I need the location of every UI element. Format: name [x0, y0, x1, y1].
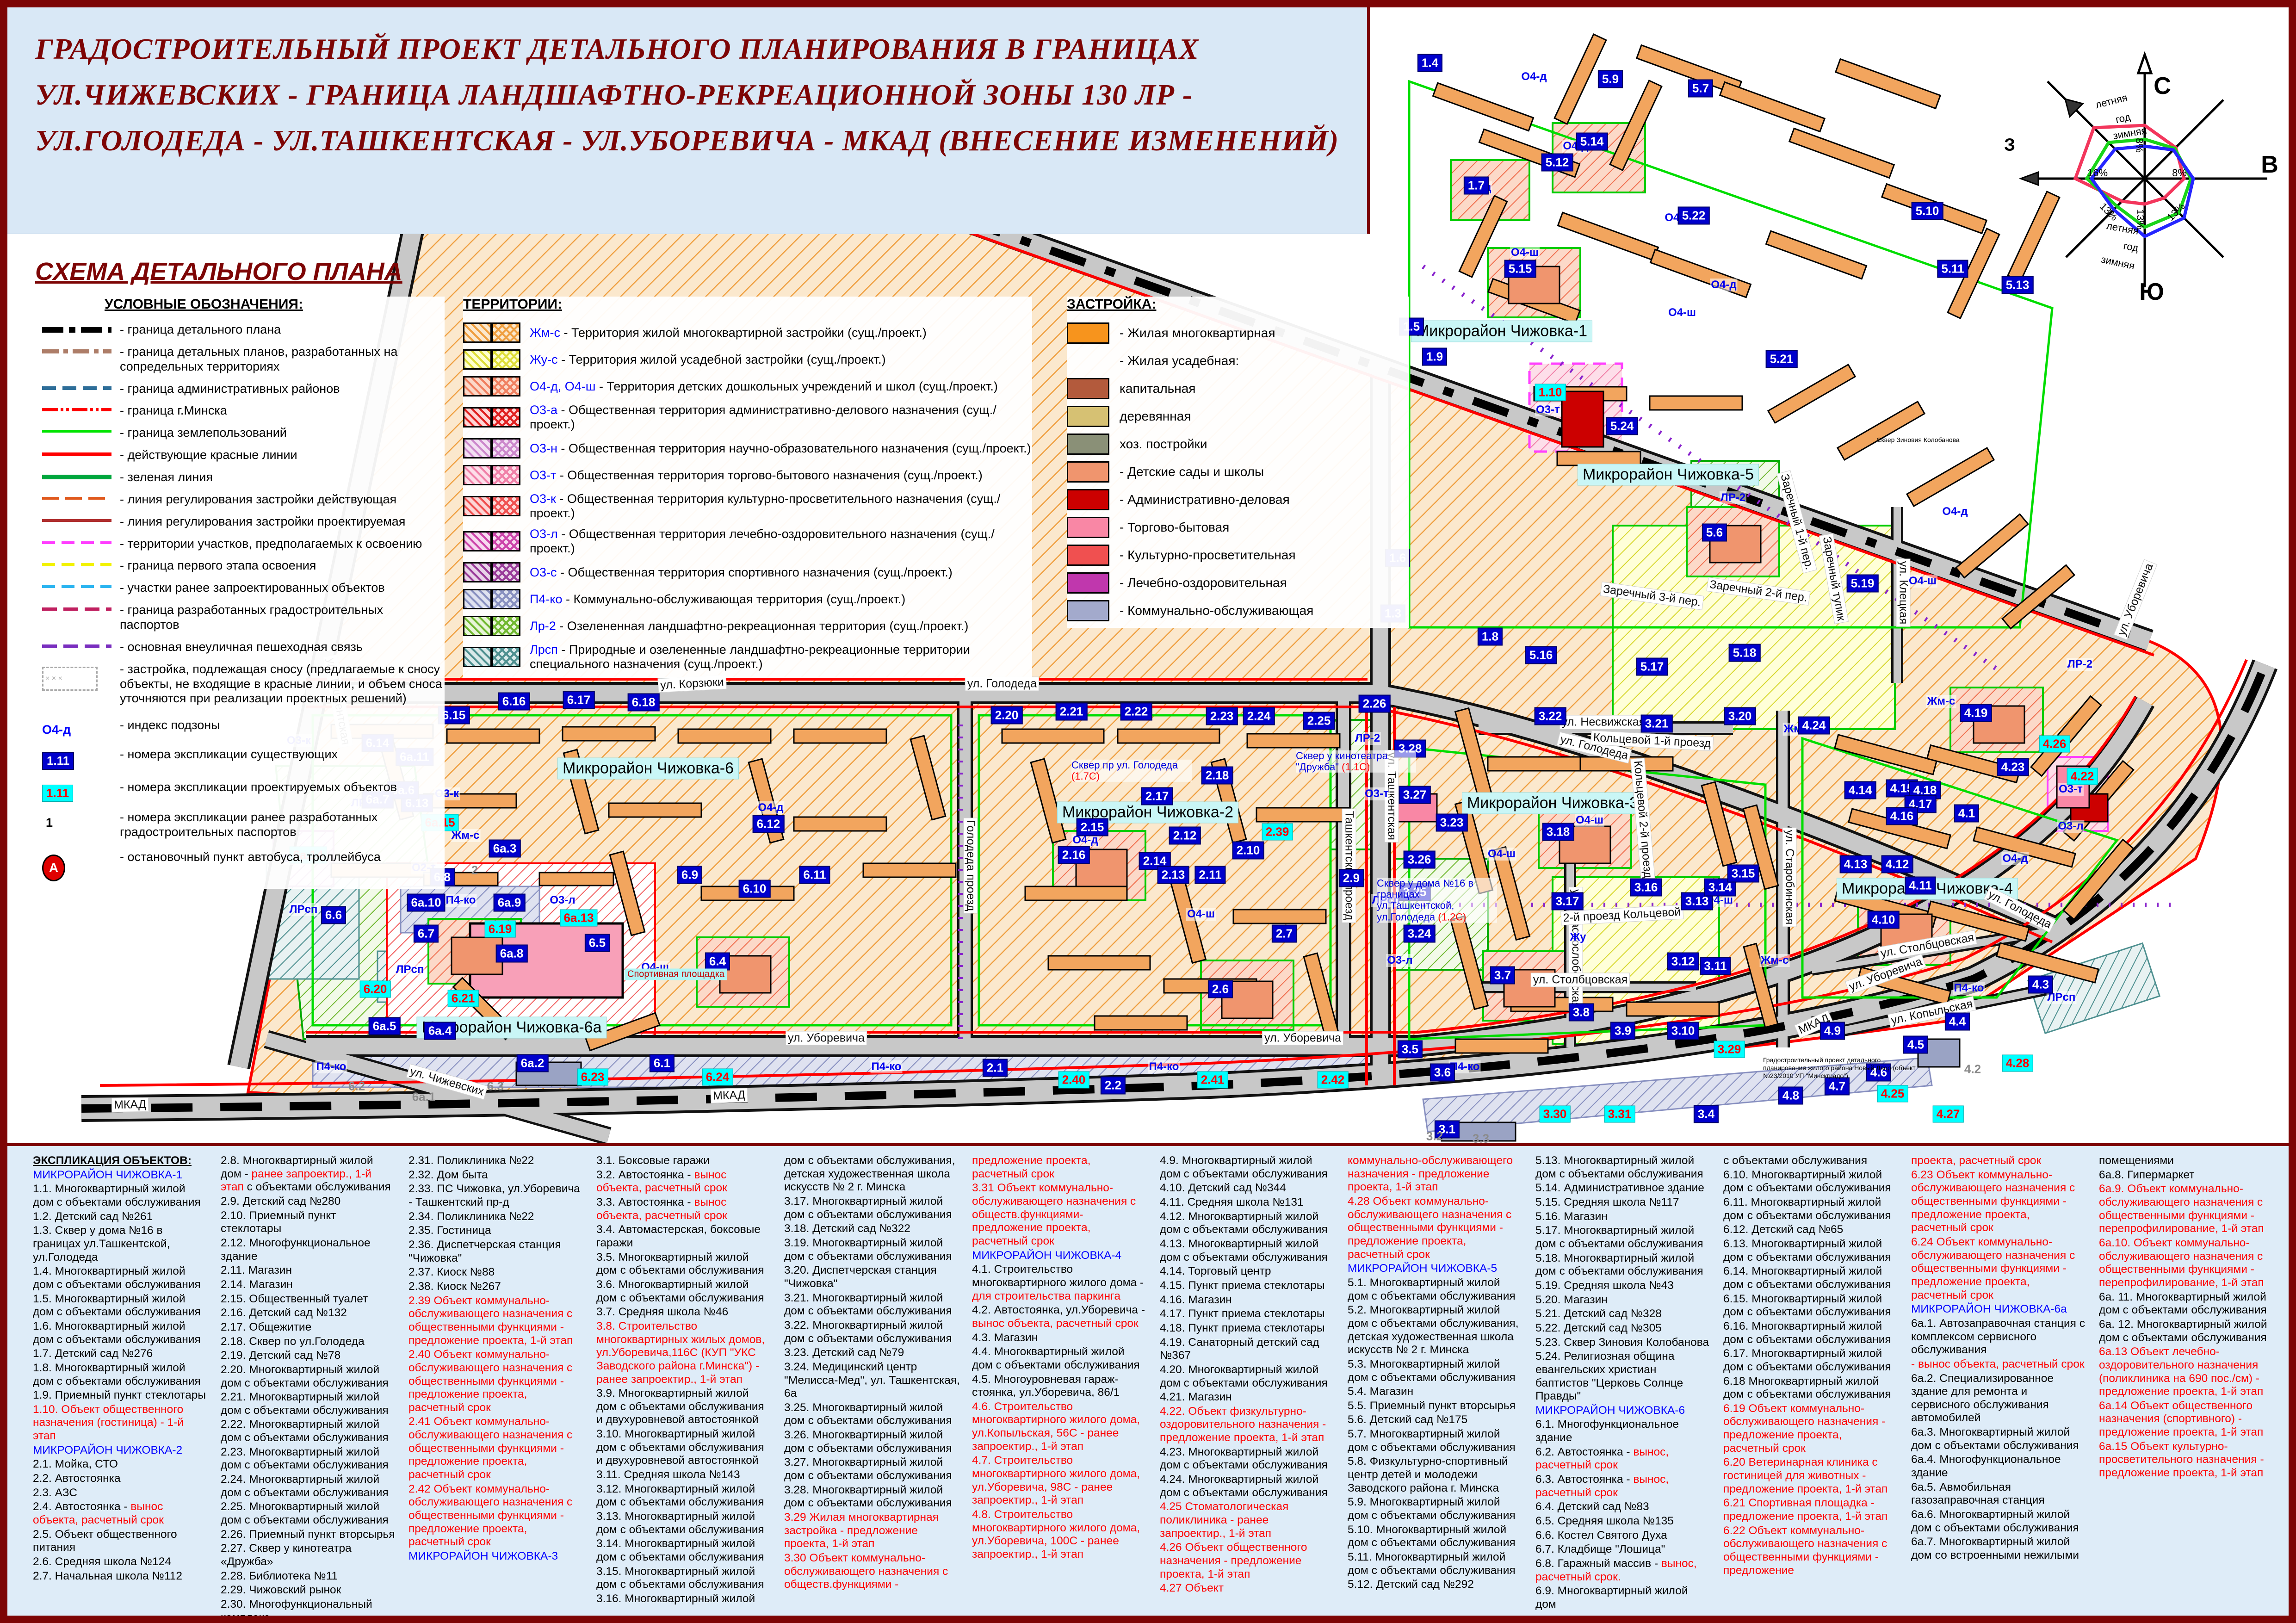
explication-text-run: 2.36. Диспетчерская станция "Чижовка": [408, 1239, 561, 1264]
territory-code: О3-а: [530, 403, 557, 417]
explication-text-run: 2.6. Средняя школа №124: [33, 1555, 171, 1568]
explication-entry: 3.5. Многоквартирный жилой дом с объекта…: [596, 1251, 772, 1277]
explication-entry: 2.38. Киоск №267: [408, 1280, 584, 1294]
legend-line-sample: [42, 497, 111, 500]
explication-column: 2.8. Многоквартирный жилой дом - ранее з…: [221, 1154, 396, 1611]
explication-entry: 4.7. Строительство многоквартирного жило…: [972, 1454, 1148, 1507]
legend-territory-label: О3-т - Общественная территория торгово-б…: [530, 468, 983, 483]
explication-entry: 2.20. Многоквартирный жилой дом с объект…: [221, 1363, 396, 1390]
explication-entry: 4.6. Строительство многоквартирного жило…: [972, 1400, 1148, 1454]
wind-rose-label: В: [2261, 151, 2278, 179]
explication-entry: 5.24. Религиозная община евангельских хр…: [1535, 1350, 1711, 1403]
explication-text-run: 5.18. Многоквартирный жилой дом с объект…: [1535, 1252, 1703, 1278]
explication-text-run: 3.13. Многоквартирный жилой дом с объект…: [596, 1510, 764, 1536]
explication-entry: коммунально-обслуживающего назначения - …: [1348, 1154, 1523, 1194]
explication-entry: 3.23. Детский сад №79: [784, 1346, 960, 1360]
explication-entry: 5.1. Многоквартирный жилой дом с объекта…: [1348, 1276, 1523, 1303]
explication-entry: 2.41 Объект коммунально-обслуживающего н…: [408, 1415, 584, 1481]
explication-entry: 4.18. Пункт приема стеклотары: [1160, 1322, 1336, 1335]
explication-entry: МИКРОРАЙОН ЧИЖОВКА-5: [1348, 1262, 1523, 1276]
explication-column: 2.31. Поликлиника №222.32. Дом быта2.33.…: [408, 1154, 584, 1611]
explication-text-run: 6.24 Объект коммунально-обслуживающего н…: [1911, 1236, 2075, 1301]
legend-zastroyka-label: - Лечебно-оздоровительная: [1120, 576, 1287, 590]
explication-entry: 6а.8. Гипермаркет: [2099, 1169, 2275, 1182]
building-footprint: [1455, 1039, 1548, 1053]
legend-territory-item: О3-с - Общественная территория спортивно…: [463, 562, 1032, 582]
explication-text-run: 5.23. Сквер Зиновия Колобанова: [1535, 1336, 1709, 1349]
explication-text-run: 6.10. Многоквартирный жилой дом с объект…: [1723, 1169, 1891, 1195]
legend-territory-item: О3-а - Общественная территория администр…: [463, 403, 1032, 432]
explication-text-run: 1.1. Многоквартирный жилой дом с объекта…: [33, 1183, 201, 1208]
legend-line-sample: [42, 585, 111, 588]
zastroyka-swatch: [1067, 406, 1109, 427]
explication-entry: 6.8. Гаражный массив - вынос, расчетный …: [1535, 1557, 1711, 1584]
explication-entry: 2.6. Средняя школа №124: [33, 1555, 209, 1569]
building-footprint: [1256, 808, 1349, 822]
explication-entry: 5.15. Средняя школа №117: [1535, 1196, 1711, 1209]
explication-text-run: 4.23. Многоквартирный жилой дом с объект…: [1160, 1446, 1328, 1472]
explication-entry: 2.37. Киоск №88: [408, 1266, 584, 1279]
zastroyka-swatch: [1067, 378, 1109, 399]
building-footprint: [1956, 514, 2028, 577]
explication-text-run: 2.38. Киоск №267: [408, 1280, 501, 1293]
explication-text-run: 3.2. Автостоянка -: [596, 1169, 694, 1181]
explication-entry: 6а.3. Многоквартирный жилой дом с объект…: [1911, 1426, 2087, 1452]
building-footprint: [609, 803, 701, 817]
explication-entry: 3.22. Многоквартирный жилой дом с объект…: [784, 1319, 960, 1345]
legend-line-sample: [42, 519, 111, 522]
explication-entry: 2.36. Диспетчерская станция "Чижовка": [408, 1239, 584, 1265]
legend-zastroyka-item: хоз. постройки: [1067, 434, 1409, 455]
explication-text-run: 6а.6. Многоквартирный жилой дом с объект…: [1911, 1508, 2079, 1534]
explication-entry: 6.5. Средняя школа №135: [1535, 1515, 1711, 1528]
explication-entry: 3.20. Диспетчерская станция "Чижовка": [784, 1264, 960, 1290]
explication-entry: 6а. 12. Многоквартирный жилой дом с объе…: [2099, 1318, 2275, 1344]
building-footprint: [1076, 849, 1127, 886]
explication-entry: 5.20. Магазин: [1535, 1294, 1711, 1307]
explication-text-run: 4.28 Объект коммунально-обслуживающего н…: [1348, 1195, 1511, 1261]
explication-entry: дом с объектами обслуживания, детская ху…: [784, 1154, 960, 1194]
building-footprint: [563, 727, 655, 741]
explication-entry: 4.20. Многоквартирный жилой дом с объект…: [1160, 1363, 1336, 1390]
explication-entry: 6.10. Многоквартирный жилой дом с объект…: [1723, 1169, 1899, 1195]
explication-text-run: 4.18. Пункт приема стеклотары: [1160, 1322, 1324, 1334]
legend-territory-item: П4-ко - Коммунально-обслуживающая террит…: [463, 589, 1032, 609]
building-footprint: [794, 729, 886, 743]
explication-entry: 3.17. Многоквартирный жилой дом с объект…: [784, 1195, 960, 1221]
territory-swatch-pair: [463, 616, 520, 636]
explication-entry: 1.10. Объект общественного назначения (г…: [33, 1403, 209, 1443]
building-footprint: [1002, 729, 1104, 743]
building-footprint: [1974, 706, 2024, 743]
explication-text-run: 4.9. Многоквартирный жилой дом с объекта…: [1160, 1154, 1328, 1180]
explication-text-run: 6.3. Автостоянка -: [1535, 1473, 1633, 1486]
explication-text-run: 4.26 Объект общественного назначения - п…: [1160, 1541, 1307, 1580]
legend-conditional-label: - граница первого этапа освоения: [120, 558, 316, 573]
explication-text-run: 6.1. Многофункциональное здание: [1535, 1418, 1679, 1444]
legend-conditional-label: - номера экспликации существующих: [120, 747, 338, 762]
explication-text-run: 2.12. Многофункциональное здание: [221, 1237, 371, 1263]
explication-text-run: 4.14. Торговый центр: [1160, 1265, 1271, 1277]
explication-text-run: 3.30 Объект коммунально-обслуживающего н…: [784, 1552, 948, 1591]
legend-conditional-item: - действующие красные линии: [42, 448, 445, 463]
explication-text-run: 3.27. Многоквартирный жилой дом с объект…: [784, 1456, 952, 1482]
explication-entry: 5.12. Детский сад №292: [1348, 1578, 1523, 1592]
explication-entry: 2.22. Многоквартирный жилой дом с объект…: [221, 1418, 396, 1444]
building-footprint: [1395, 794, 1437, 822]
legend-conditional-item: - граница землепользований: [42, 426, 445, 440]
legend-sample-d5: [42, 497, 111, 500]
explication-entry: 6а.9. Объект коммунально-обслуживающего …: [2099, 1183, 2275, 1236]
explication-text-run: 2.29. Чижовский рынок: [221, 1584, 341, 1596]
explication-text-run: 6а.9. Объект коммунально-обслуживающего …: [2099, 1183, 2264, 1235]
bus-stop-sample: А: [42, 855, 65, 881]
legend-sample-box: × × ×: [42, 667, 111, 691]
wind-rose-label: год: [2115, 111, 2132, 126]
explication-entry: 4.15. Пункт приема стеклотары: [1160, 1279, 1336, 1293]
explication-text-run: 6.6. Костел Святого Духа: [1535, 1529, 1667, 1542]
explication-entry: 1.9. Приемный пункт стеклотары: [33, 1389, 209, 1402]
explication-entry: 6.9. Многоквартирный жилой дом: [1535, 1585, 1711, 1611]
legend-zastroyka-label: хоз. постройки: [1120, 437, 1207, 452]
territory-swatch-existing: [463, 349, 492, 370]
legend-sample-numc: 1.11: [42, 785, 111, 802]
explication-column: 5.13. Многоквартирный жилой дом с объект…: [1535, 1154, 1711, 1611]
explication-text-run: с объектами обслуживания: [1723, 1154, 1867, 1167]
explication-text-run: 2.32. Дом быта: [408, 1169, 488, 1181]
explication-entry: 6.12. Детский сад №65: [1723, 1223, 1899, 1237]
territory-swatch-proposed: [492, 438, 520, 458]
explication-text-run: 6а. 12. Многоквартирный жилой дом с объе…: [2099, 1318, 2267, 1344]
legend-sample-d6: [42, 541, 111, 544]
explication-entry: 2.30. Многофункциональный комплекс: [221, 1598, 396, 1623]
explication-text-run: 6.23 Объект коммунально-обслуживающего н…: [1911, 1169, 2075, 1234]
explication-entry: 5.18. Многоквартирный жилой дом с объект…: [1535, 1252, 1711, 1278]
legend-sample-d7: [42, 563, 111, 566]
territory-swatch-existing: [463, 589, 492, 609]
legend-zastroyka-item: - Жилая усадебная:: [1067, 350, 1409, 372]
explication-text-run: 4.25 Стоматологическая поликлиника - ран…: [1160, 1500, 1288, 1539]
legend-zastroyka-item: - Культурно-просветительная: [1067, 545, 1409, 566]
wind-rose-label: 13%: [2134, 209, 2146, 229]
explication-entry: 2.7. Начальная школа №112: [33, 1570, 209, 1583]
subzone-index-code: О4-д: [42, 723, 71, 737]
legend-territory-label: Лрсп - Природные и озелененные ландшафтн…: [530, 643, 1032, 671]
legend-zastroyka-label: - Культурно-просветительная: [1120, 548, 1296, 563]
explication-entry: 3.3. Автостоянка - вынос объекта, расчет…: [596, 1196, 772, 1222]
territory-swatch-proposed: [492, 616, 520, 636]
explication-entry: 2.23. Многоквартирный жилой дом с объект…: [221, 1446, 396, 1472]
legend-territory-label: О4-д, О4-ш - Территория детских дошкольн…: [530, 379, 998, 394]
territory-swatch-pair: [463, 376, 520, 396]
building-footprint: [863, 863, 956, 877]
territory-code: О3-к: [530, 492, 556, 506]
explication-text-run: 2.39 Объект коммунально-обслуживающего н…: [408, 1295, 573, 1347]
legend-line-sample: [42, 349, 111, 353]
explication-entry: 6а.7. Многоквартирный жилой дом со встро…: [1911, 1536, 2087, 1562]
legend-territory-item: Жу-с - Территория жилой усадебной застро…: [463, 349, 1032, 370]
legend-conditional-label: - граница землепользований: [120, 426, 287, 440]
legend-conditional-item: - основная внеуличная пешеходная связь: [42, 640, 445, 655]
explication-entry: 5.23. Сквер Зиновия Колобанова: [1535, 1336, 1711, 1350]
explication-text-run: 2.42 Объект коммунально-обслуживающего н…: [408, 1483, 572, 1549]
legend-line-sample: [42, 386, 111, 390]
explication-entry: 3.1. Боксовые гаражи: [596, 1154, 772, 1168]
explication-text-run: помещениями: [2099, 1154, 2174, 1167]
legend-conditional-label: - остановочный пункт автобуса, троллейбу…: [120, 850, 381, 865]
territory-swatch-proposed: [492, 589, 520, 609]
legend-territory-item: Лр-2 - Озелененная ландшафтно-рекреацион…: [463, 616, 1032, 636]
explication-text-run: 6.16. Многоквартирный жилой дом с объект…: [1723, 1320, 1891, 1346]
territory-swatch-pair: [463, 349, 520, 370]
explication-text-run: 3.24. Медицинский центр "Мелисса-Мед", у…: [784, 1361, 960, 1400]
explication-entry: 6а.13 Объект лечебно-оздоровительного на…: [2099, 1345, 2275, 1399]
explication-text-run: 3.15. Многоквартирный жилой дом с объект…: [596, 1565, 764, 1591]
legend-sample-d2: [42, 349, 111, 353]
explication-text-run: 4.13. Многоквартирный жилой дом с объект…: [1160, 1238, 1328, 1264]
building-footprint: [1247, 734, 1340, 748]
legend-conditional-label: - граница г.Минска: [120, 403, 227, 418]
building-footprint: [1580, 757, 1673, 771]
wind-rose-label: 8%: [2172, 167, 2187, 179]
legend-conditional-label: - зеленая линия: [120, 470, 213, 485]
explication-entry: 6а.1. Автозаправочная станция с комплекс…: [1911, 1317, 2087, 1357]
territory-code: Лрсп: [530, 643, 558, 657]
explication-text-run: 6а.13 Объект лечебно-оздоровительного на…: [2099, 1345, 2263, 1398]
explication-entry: 3.6. Многоквартирный жилой дом с объекта…: [596, 1278, 772, 1305]
explication-entry: 3.18. Детский сад №322: [784, 1222, 960, 1236]
building-footprint: [1881, 914, 1932, 951]
explication-entry: - вынос объекта, расчетный срок: [1911, 1358, 2087, 1371]
legend-sample-d8: [42, 585, 111, 588]
explication-text-run: 4.6. Строительство многоквартирного жило…: [972, 1400, 1140, 1453]
explication-text-run: 6.9. Многоквартирный жилой дом: [1535, 1585, 1688, 1611]
explication-entry: предложение проекта, расчетный срок: [972, 1154, 1148, 1181]
explication-entry: МИКРОРАЙОН ЧИЖОВКА-6: [1535, 1404, 1711, 1418]
explication-text-run: 2.30. Многофункциональный комплекс: [221, 1598, 372, 1623]
territory-swatch-pair: [463, 531, 520, 551]
building-footprint: [1025, 886, 1127, 900]
legend-sample-nump: 1: [42, 815, 111, 831]
explication-entry: 4.14. Торговый центр: [1160, 1265, 1336, 1278]
explication-text-run: 6а.4. Многофункциональное здание: [1911, 1453, 2061, 1479]
explication-text-run: 3.19. Многоквартирный жилой дом с объект…: [784, 1237, 952, 1263]
explication-entry: 6.13. Многоквартирный жилой дом с объект…: [1723, 1238, 1899, 1264]
zastroyka-swatch: [1067, 489, 1109, 510]
zastroyka-swatch: [1067, 322, 1109, 344]
legend-line-sample: [42, 563, 111, 566]
legend-zastroyka-label: - Административно-деловая: [1120, 492, 1290, 507]
explication-entry: 4.1. Строительство многоквартирного жило…: [972, 1263, 1148, 1303]
legend-sample-bus: А: [42, 855, 111, 881]
legend-conditional-item: - линия регулирования застройки проектир…: [42, 514, 445, 529]
building-footprint: [1562, 391, 1603, 447]
title-line-1: ГРАДОСТРОИТЕЛЬНЫЙ ПРОЕКТ ДЕТАЛЬНОГО ПЛАН…: [35, 26, 1349, 72]
title-panel: ГРАДОСТРОИТЕЛЬНЫЙ ПРОЕКТ ДЕТАЛЬНОГО ПЛАН…: [7, 7, 1370, 234]
explication-entry: 5.10. Многоквартирный жилой дом с объект…: [1348, 1524, 1523, 1550]
explication-entry: 4.10. Детский сад №344: [1160, 1182, 1336, 1195]
explication-entry: 4.3. Магазин: [972, 1332, 1148, 1345]
legend-conditional-item: - граница административных районов: [42, 382, 445, 396]
explication-entry: 1.6. Многоквартирный жилой дом с объекта…: [33, 1320, 209, 1346]
explication-entry: 6а.5. Авмобильная газозаправочная станци…: [1911, 1481, 2087, 1507]
explication-entry: 5.6. Детский сад №175: [1348, 1413, 1523, 1427]
explication-text-run: 3.16. Многоквартирный жилой: [596, 1592, 755, 1605]
territory-swatch-pair: [463, 438, 520, 458]
explication-entry: 6.16. Многоквартирный жилой дом с объект…: [1723, 1320, 1899, 1346]
legend-zastroyka-label: - Коммунально-обслуживающая: [1120, 603, 1313, 618]
explication-entry: 5.11. Многоквартирный жилой дом с объект…: [1348, 1551, 1523, 1577]
explication-text-run: 1.9. Приемный пункт стеклотары: [33, 1389, 206, 1401]
explication-text-run: 6а.8. Гипермаркет: [2099, 1169, 2195, 1181]
territory-swatch-existing: [463, 531, 492, 551]
demolition-box-sample: × × ×: [42, 667, 98, 691]
building-footprint: [1233, 910, 1326, 923]
explication-entry: 6.22 Объект коммунально-обслуживающего н…: [1723, 1524, 1899, 1578]
explication-entry: 2.27. Сквер у кинотеатра «Дружба»: [221, 1542, 396, 1568]
explication-entry: 5.2. Многоквартирный жилой дом с объекта…: [1348, 1304, 1523, 1357]
explication-entry: 5.9. Многоквартирный жилой дом с объекта…: [1348, 1496, 1523, 1522]
explication-text-run: 2.9. Детский сад №280: [221, 1195, 340, 1208]
territory-swatch-existing: [463, 438, 492, 458]
legend-sample-d1: [42, 327, 111, 333]
explication-text-run: 3.10. Многоквартирный жилой дом с объект…: [596, 1428, 764, 1467]
explication-entry: 3.31 Объект коммунально-обслуживающего н…: [972, 1182, 1148, 1248]
explication-text-run: 6.19 Объект коммунально-обслуживающего н…: [1723, 1402, 1885, 1455]
explication-text-run: 2.20. Многоквартирный жилой дом с объект…: [221, 1363, 389, 1389]
legend-territory-item: О3-т - Общественная территория торгово-б…: [463, 465, 1032, 485]
explication-entry: 2.21. Многоквартирный жилой дом с объект…: [221, 1391, 396, 1417]
explication-text-run: 3.5. Многоквартирный жилой дом с объекта…: [596, 1251, 764, 1277]
explication-entry: 3.12. Многоквартирный жилой дом с объект…: [596, 1483, 772, 1509]
explication-entry: помещениями: [2099, 1154, 2275, 1168]
explication-entry: 1.8. Многоквартирный жилой дом с объекта…: [33, 1362, 209, 1388]
title-line-2: УЛ.ЧИЖЕВСКИХ - ГРАНИЦА ЛАНДШАФТНО-РЕКРЕА…: [35, 72, 1349, 118]
explication-text-run: 5.2. Многоквартирный жилой дом с объекта…: [1348, 1304, 1519, 1356]
wind-rose-label: С: [2154, 72, 2171, 100]
explication-text-run: 4.16. Магазин: [1160, 1294, 1232, 1306]
building-footprint: [1650, 396, 1742, 410]
zastroyka-swatch: [1067, 517, 1109, 538]
explication-entry: 4.2. Автостоянка, ул.Уборевича - вынос о…: [972, 1304, 1148, 1330]
explication-text-run: 3.9. Многоквартирный жилой дом с объекта…: [596, 1387, 764, 1426]
territory-code: О3-н: [530, 441, 557, 455]
legend-conditional-item: - линия регулирования застройки действую…: [42, 492, 445, 507]
explication-text-run: 4.19. Санаторный детский сад №367: [1160, 1336, 1319, 1362]
explication-panel: ЭКСПЛИКАЦИЯ ОБЪЕКТОВ:МИКРОРАЙОН ЧИЖОВКА-…: [7, 1143, 2289, 1616]
explication-entry: 3.21. Многоквартирный жилой дом с объект…: [784, 1292, 960, 1318]
explication-column: проекта, расчетный срок6.23 Объект комму…: [1911, 1154, 2087, 1611]
explication-text-run: 5.6. Детский сад №175: [1348, 1413, 1467, 1426]
legend-conditional-label: - территории участков, предполагаемых к …: [120, 537, 422, 551]
explication-entry: 5.13. Многоквартирный жилой дом с объект…: [1535, 1154, 1711, 1181]
wind-rose-label: Ю: [2139, 278, 2164, 306]
territory-code: О3-с: [530, 565, 557, 579]
territory-swatch-proposed: [492, 349, 520, 370]
building-footprint: [2057, 766, 2089, 808]
legend-sample-d9: [42, 607, 111, 611]
explication-entry: 2.3. АЗС: [33, 1487, 209, 1500]
explication-text-run: 5.8. Физкультурно-спортивный центр детей…: [1348, 1455, 1508, 1494]
explication-text-run: 2.14. Магазин: [221, 1278, 293, 1291]
explication-text-run: 2.28. Библиотека №11: [221, 1570, 338, 1582]
explication-text-run: 4.11. Средняя школа №131: [1160, 1196, 1304, 1208]
explication-entry: 3.7. Средняя школа №46: [596, 1306, 772, 1319]
legend-zastroyka-item: - Детские сады и школы: [1067, 461, 1409, 483]
explication-entry: 6.6. Костел Святого Духа: [1535, 1529, 1711, 1542]
wind-rose: СВЮЗлетняягодзимняялетняягодзимняя8%8%16…: [1992, 26, 2288, 313]
explication-text-run: 2.40 Объект коммунально-обслуживающего н…: [408, 1348, 572, 1414]
territory-swatch-pair: [463, 496, 520, 516]
explication-text-run: 3.31 Объект коммунально-обслуживающего н…: [972, 1182, 1136, 1247]
legend-zastroyka-item: капитальная: [1067, 378, 1409, 399]
explication-entry: 3.25. Многоквартирный жилой дом с объект…: [784, 1401, 960, 1428]
explication-text-run: 2.17. Общежитие: [221, 1321, 311, 1333]
explication-text-run: 3.7. Средняя школа №46: [596, 1306, 728, 1318]
explication-text-run: 6.15. Многоквартирный жилой дом с объект…: [1723, 1293, 1891, 1319]
territory-code: О3-л: [530, 527, 558, 541]
territory-swatch-pair: [463, 562, 520, 582]
building-footprint: [1222, 981, 1273, 1018]
territory-swatch-existing: [463, 562, 492, 582]
explication-text-run: дом с объектами обслуживания, детская ху…: [784, 1154, 955, 1193]
legend-conditional: УСЛОВНЫЕ ОБОЗНАЧЕНИЯ: - граница детально…: [42, 297, 445, 889]
legend-sample-d4: [42, 408, 111, 411]
explication-text-run: 2.22. Многоквартирный жилой дом с объект…: [221, 1418, 389, 1444]
legend-conditional-label: - граница разработанных градостроительны…: [120, 603, 445, 632]
explication-entry: 2.5. Объект общественного питания: [33, 1528, 209, 1555]
territory-swatch-existing: [463, 407, 492, 427]
building-footprint: [516, 1062, 581, 1085]
legend-sample-s2: [42, 452, 111, 456]
explication-text-run: проекта, расчетный срок: [1911, 1154, 2041, 1167]
building-footprint: [452, 937, 502, 974]
explication-text-run: 1.5. Многоквартирный жилой дом с объекта…: [33, 1293, 201, 1319]
legend-conditional-item: - граница первого этапа освоения: [42, 558, 445, 573]
explication-entry: 4.11. Средняя школа №131: [1160, 1196, 1336, 1209]
explication-text-run: 1.4. Многоквартирный жилой дом с объекта…: [33, 1265, 201, 1291]
territory-swatch-pair: [463, 465, 520, 485]
territory-code: О3-т: [530, 468, 556, 482]
explication-entry: МИКРОРАЙОН ЧИЖОВКА-4: [972, 1249, 1148, 1263]
explication-entry: 5.21. Детский сад №328: [1535, 1307, 1711, 1321]
territory-swatch-proposed: [492, 465, 520, 485]
explication-entry: 3.15. Многоквартирный жилой дом с объект…: [596, 1565, 772, 1592]
explication-text-run: 2.5. Объект общественного питания: [33, 1528, 177, 1554]
wind-rose-label: 16%: [2087, 167, 2108, 179]
building-footprint: [1720, 82, 1825, 132]
explication-text-run: 6а.10. Объект коммунально-обслуживающего…: [2099, 1237, 2264, 1289]
territory-swatch-proposed: [492, 407, 520, 427]
building-footprint: [1710, 526, 1761, 563]
wind-rose-label: зимняя: [2100, 254, 2135, 273]
explication-entry: 5.17. Многоквартирный жилой дом с объект…: [1535, 1224, 1711, 1251]
explication-text-run: 3.23. Детский сад №79: [784, 1346, 904, 1359]
wind-rose-labels: СВЮЗлетняягодзимняялетняягодзимняя8%8%16…: [1992, 26, 2288, 313]
explication-entry: 3.26. Многоквартирный жилой дом с объект…: [784, 1429, 960, 1455]
territory-swatch-proposed: [492, 322, 520, 343]
territory-swatch-existing: [463, 647, 492, 667]
explication-entry: 4.5. Многоуровневая гараж-стоянка, ул.Уб…: [972, 1373, 1148, 1400]
legend-zastroyka: ЗАСТРОЙКА: - Жилая многоквартирная- Жила…: [1067, 297, 1409, 628]
explication-entry: 4.27 Объект: [1160, 1582, 1336, 1595]
legend-conditional-label: - граница административных районов: [120, 382, 340, 396]
explication-text-run: 5.14. Административное здание: [1535, 1182, 1704, 1194]
explication-text-run: 3.6. Многоквартирный жилой дом с объекта…: [596, 1278, 764, 1304]
explication-entry: 1.5. Многоквартирный жилой дом с объекта…: [33, 1293, 209, 1319]
legend-territory-label: О3-н - Общественная территория научно-об…: [530, 441, 1031, 456]
explication-text-run: 6а.2. Специализированное здание для ремо…: [1911, 1372, 2054, 1425]
